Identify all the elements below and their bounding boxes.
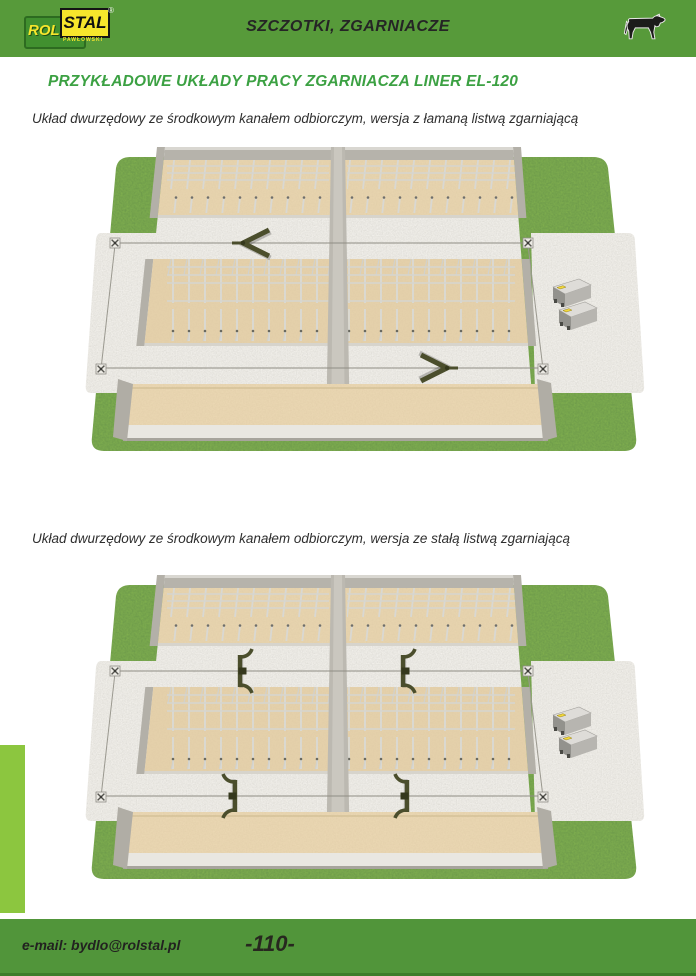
footer-email: e-mail: bydlo@rolstal.pl	[22, 937, 180, 953]
section-title: SZCZOTKI, ZGARNIACZE	[0, 18, 696, 36]
barn-scene	[86, 575, 644, 879]
catalog-page: ROL STAL PAWŁOWSKI ® SZCZOTKI, ZGARNIACZ…	[0, 0, 696, 976]
side-tab	[0, 745, 25, 913]
figure-1-caption: Układ dwurzędowy ze środkowym kanałem od…	[32, 111, 578, 126]
registered-mark: ®	[108, 6, 114, 15]
page-footer: e-mail: bydlo@rolstal.pl -110-	[0, 919, 696, 976]
logo-subtitle: PAWŁOWSKI	[63, 37, 103, 43]
page-number: -110-	[225, 931, 315, 957]
figure-fixed-scraper	[85, 567, 645, 887]
barn-scene	[86, 147, 644, 451]
figure-articulated-scraper	[85, 139, 645, 459]
page-heading: PRZYKŁADOWE UKŁADY PRACY ZGARNIACZA LINE…	[48, 73, 518, 91]
page-header: ROL STAL PAWŁOWSKI ® SZCZOTKI, ZGARNIACZ…	[0, 0, 696, 57]
figure-2-caption: Układ dwurzędowy ze środkowym kanałem od…	[32, 531, 570, 546]
cow-icon	[620, 13, 668, 45]
